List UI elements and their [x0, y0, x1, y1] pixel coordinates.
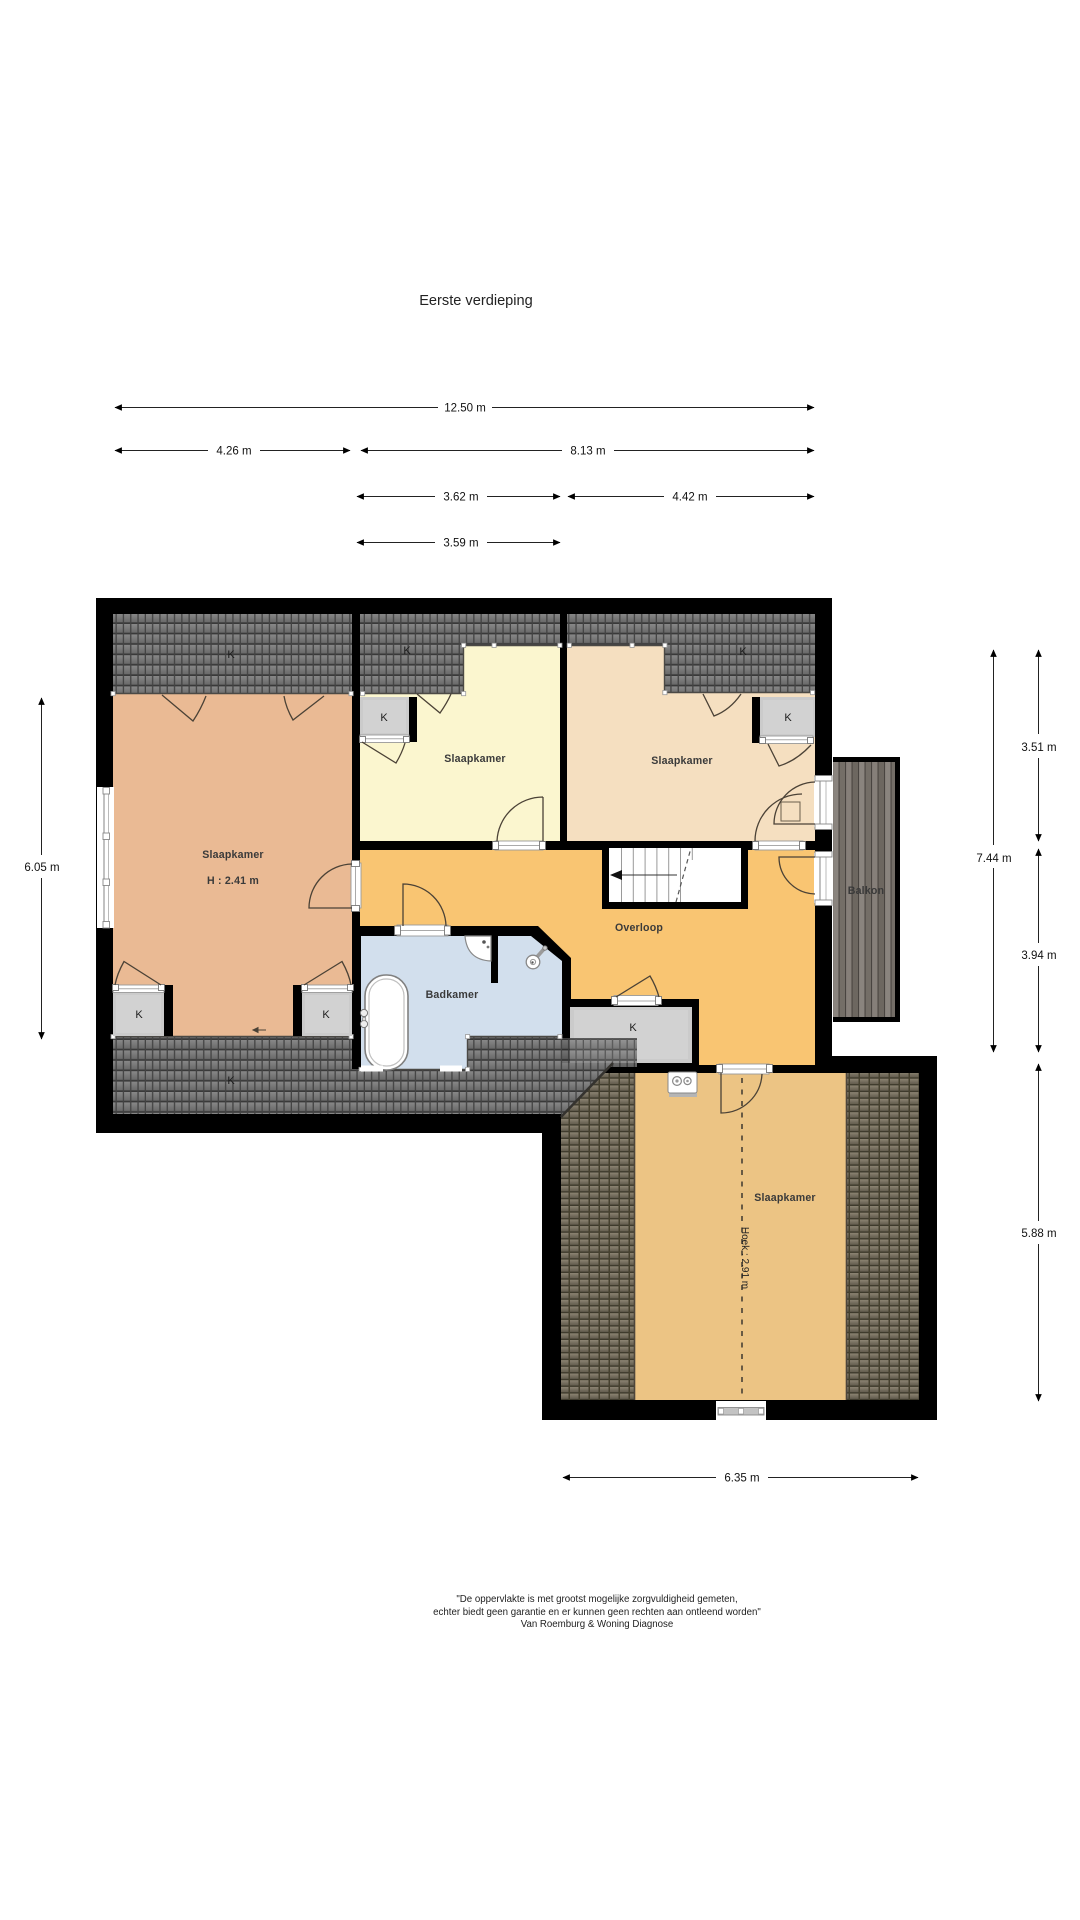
svg-text:4.26 m: 4.26 m — [216, 446, 251, 458]
svg-text:Slaapkamer: Slaapkamer — [651, 755, 712, 767]
svg-text:Slaapkamer: Slaapkamer — [444, 753, 505, 765]
svg-text:3.62 m: 3.62 m — [443, 492, 478, 504]
svg-text:Eerste verdieping: Eerste verdieping — [419, 293, 533, 309]
svg-text:8.13 m: 8.13 m — [570, 446, 605, 458]
svg-text:"De oppervlakte is met grootst: "De oppervlakte is met grootst mogelijke… — [456, 1594, 737, 1605]
svg-text:H : 2.41 m: H : 2.41 m — [207, 875, 259, 887]
svg-text:7.44 m: 7.44 m — [976, 853, 1011, 865]
svg-text:Slaapkamer: Slaapkamer — [754, 1192, 815, 1204]
svg-text:4.42 m: 4.42 m — [672, 492, 707, 504]
svg-text:K: K — [322, 1009, 330, 1021]
svg-text:K: K — [784, 712, 792, 724]
svg-text:5.88 m: 5.88 m — [1021, 1228, 1056, 1240]
svg-text:Balkon: Balkon — [848, 885, 885, 897]
svg-text:3.51 m: 3.51 m — [1021, 742, 1056, 754]
svg-text:echter biedt geen garantie en: echter biedt geen garantie en er kunnen … — [433, 1607, 761, 1618]
svg-text:K: K — [403, 645, 411, 657]
svg-text:Overloop: Overloop — [615, 922, 663, 934]
svg-text:6.05 m: 6.05 m — [24, 862, 59, 874]
svg-text:6.35 m: 6.35 m — [724, 1473, 759, 1485]
svg-text:3.59 m: 3.59 m — [443, 538, 478, 550]
svg-text:Hoek : 2.91 m: Hoek : 2.91 m — [739, 1227, 750, 1289]
svg-text:K: K — [380, 712, 388, 724]
svg-text:K: K — [227, 1075, 235, 1087]
svg-text:Badkamer: Badkamer — [426, 989, 479, 1001]
svg-text:K: K — [739, 646, 747, 658]
svg-text:K: K — [227, 649, 235, 661]
svg-text:K: K — [629, 1022, 637, 1034]
svg-text:K: K — [135, 1009, 143, 1021]
svg-text:3.94 m: 3.94 m — [1021, 950, 1056, 962]
svg-text:12.50 m: 12.50 m — [444, 403, 486, 415]
svg-text:Van Roemburg & Woning Diagnose: Van Roemburg & Woning Diagnose — [521, 1619, 674, 1630]
svg-text:Slaapkamer: Slaapkamer — [202, 849, 263, 861]
